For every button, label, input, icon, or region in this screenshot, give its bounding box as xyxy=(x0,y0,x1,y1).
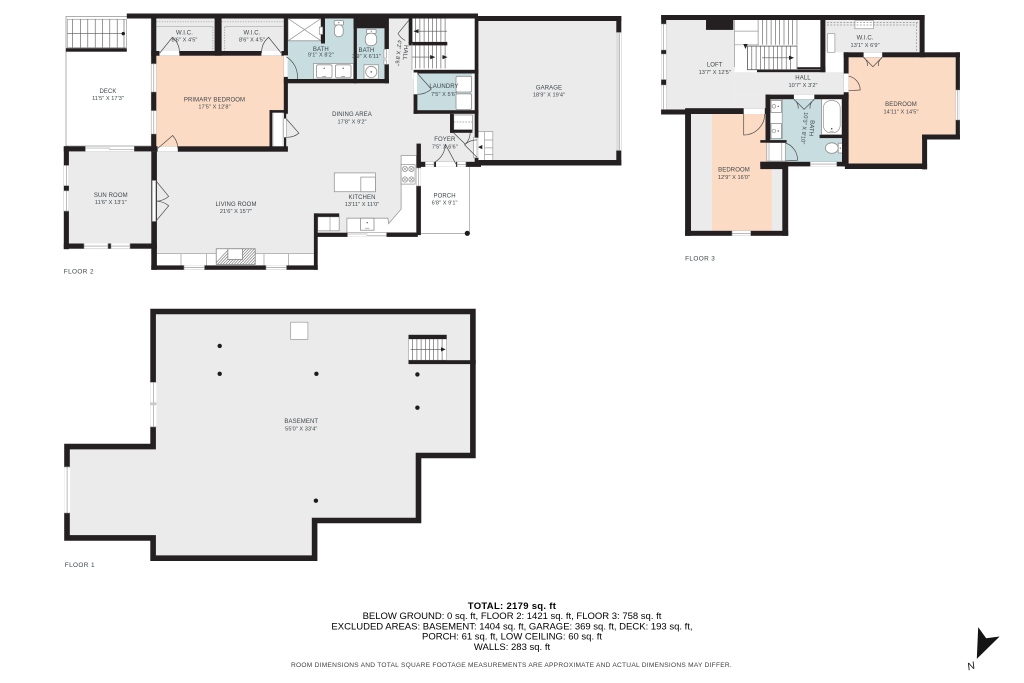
svg-text:GARAGE: GARAGE xyxy=(536,86,562,92)
svg-text:14'11" X 14'5": 14'11" X 14'5" xyxy=(883,110,918,116)
svg-text:W.I.C.: W.I.C. xyxy=(857,36,874,42)
svg-text:HALL: HALL xyxy=(795,76,811,82)
svg-text:BASEMENT: BASEMENT xyxy=(284,419,318,425)
svg-text:BEDROOM: BEDROOM xyxy=(718,168,750,174)
svg-text:ROOM DIMENSIONS AND TOTAL SQUA: ROOM DIMENSIONS AND TOTAL SQUARE FOOTAGE… xyxy=(291,662,732,669)
svg-text:7'5" X 5'6": 7'5" X 5'6" xyxy=(431,92,457,98)
svg-text:FLOOR 2: FLOOR 2 xyxy=(64,268,94,275)
svg-text:11'6" X 13'1": 11'6" X 13'1" xyxy=(95,200,127,206)
svg-text:KITCHEN: KITCHEN xyxy=(348,195,375,201)
svg-text:11'5" X 17'3": 11'5" X 17'3" xyxy=(92,96,124,102)
svg-text:13'7" X 12'5": 13'7" X 12'5" xyxy=(699,70,731,76)
svg-text:BEDROOM: BEDROOM xyxy=(885,102,917,108)
svg-text:3'9" X 6'11": 3'9" X 6'11" xyxy=(352,54,381,60)
svg-text:13'11" X 11'0": 13'11" X 11'0" xyxy=(345,202,380,208)
svg-text:21'6" X 15'7": 21'6" X 15'7" xyxy=(220,209,252,215)
svg-text:9'1" X 8'2": 9'1" X 8'2" xyxy=(308,52,334,58)
svg-text:55'0" X 33'4": 55'0" X 33'4" xyxy=(285,426,317,432)
svg-text:FLOOR 3: FLOOR 3 xyxy=(685,256,715,263)
svg-text:FLOOR 1: FLOOR 1 xyxy=(65,562,95,569)
svg-text:PORCH: PORCH xyxy=(434,194,456,200)
svg-text:LIVING ROOM: LIVING ROOM xyxy=(215,202,256,208)
svg-text:10'7" X 3'2": 10'7" X 3'2" xyxy=(788,83,817,89)
svg-text:W.I.C.: W.I.C. xyxy=(176,31,193,37)
svg-text:FOYER: FOYER xyxy=(434,137,456,143)
svg-text:12'9" X 16'0": 12'9" X 16'0" xyxy=(718,175,750,181)
svg-text:LOFT: LOFT xyxy=(707,63,723,69)
svg-text:18'9" X 19'4": 18'9" X 19'4" xyxy=(533,93,565,99)
svg-text:DINING AREA: DINING AREA xyxy=(332,112,372,118)
svg-text:PRIMARY BEDROOM: PRIMARY BEDROOM xyxy=(184,97,245,103)
svg-text:8'6" X 4'5": 8'6" X 4'5" xyxy=(172,38,198,44)
svg-text:7'5" X 6'6": 7'5" X 6'6" xyxy=(432,145,458,151)
svg-text:LAUNDRY: LAUNDRY xyxy=(429,84,458,90)
svg-text:W.I.C.: W.I.C. xyxy=(244,31,261,37)
svg-text:DECK: DECK xyxy=(99,89,116,95)
svg-text:17'5" X 12'8": 17'5" X 12'8" xyxy=(198,104,230,110)
svg-text:17'8" X 9'2": 17'8" X 9'2" xyxy=(337,120,366,126)
svg-text:8'6" X 4'5": 8'6" X 4'5" xyxy=(239,38,265,44)
svg-text:6'8" X 9'1": 6'8" X 9'1" xyxy=(432,201,458,207)
svg-text:SUN ROOM: SUN ROOM xyxy=(94,193,128,199)
svg-text:13'1" X 6'9": 13'1" X 6'9" xyxy=(851,43,880,49)
svg-text:WALLS: 283 sq. ft: WALLS: 283 sq. ft xyxy=(474,642,551,653)
